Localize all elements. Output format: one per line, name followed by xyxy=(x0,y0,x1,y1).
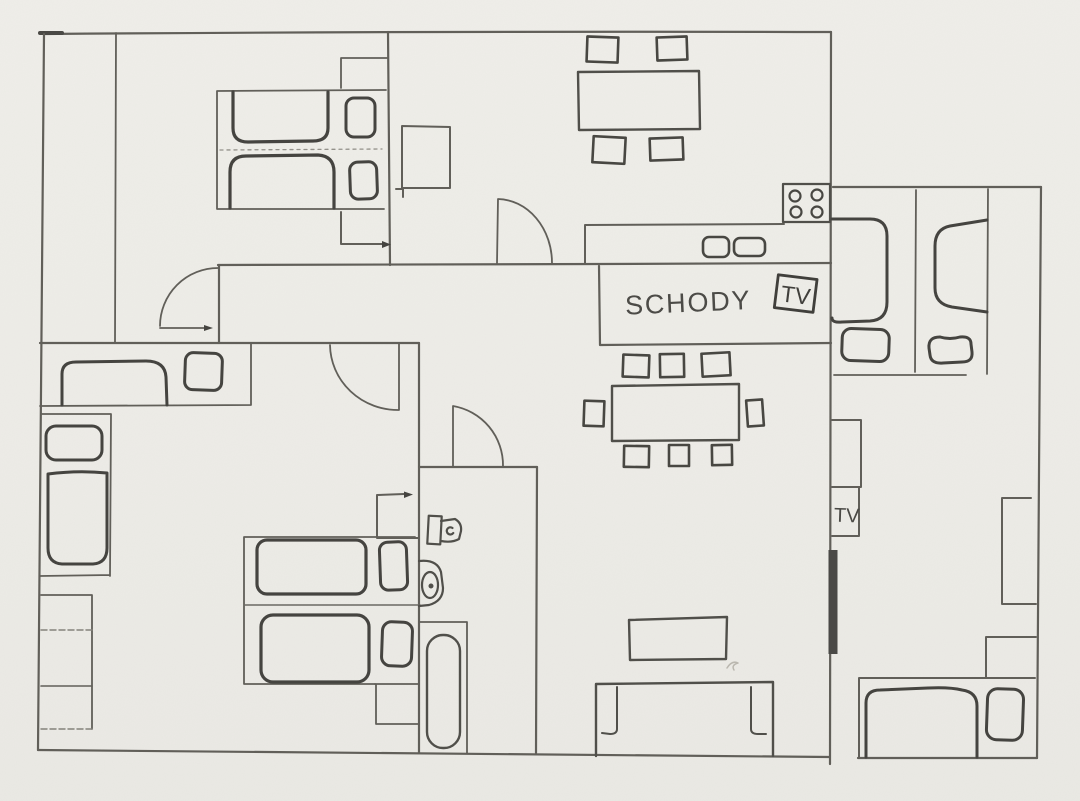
svg-text:TV: TV xyxy=(780,280,813,309)
svg-text:SCHODY: SCHODY xyxy=(624,285,752,320)
svg-text:TV: TV xyxy=(834,505,861,528)
